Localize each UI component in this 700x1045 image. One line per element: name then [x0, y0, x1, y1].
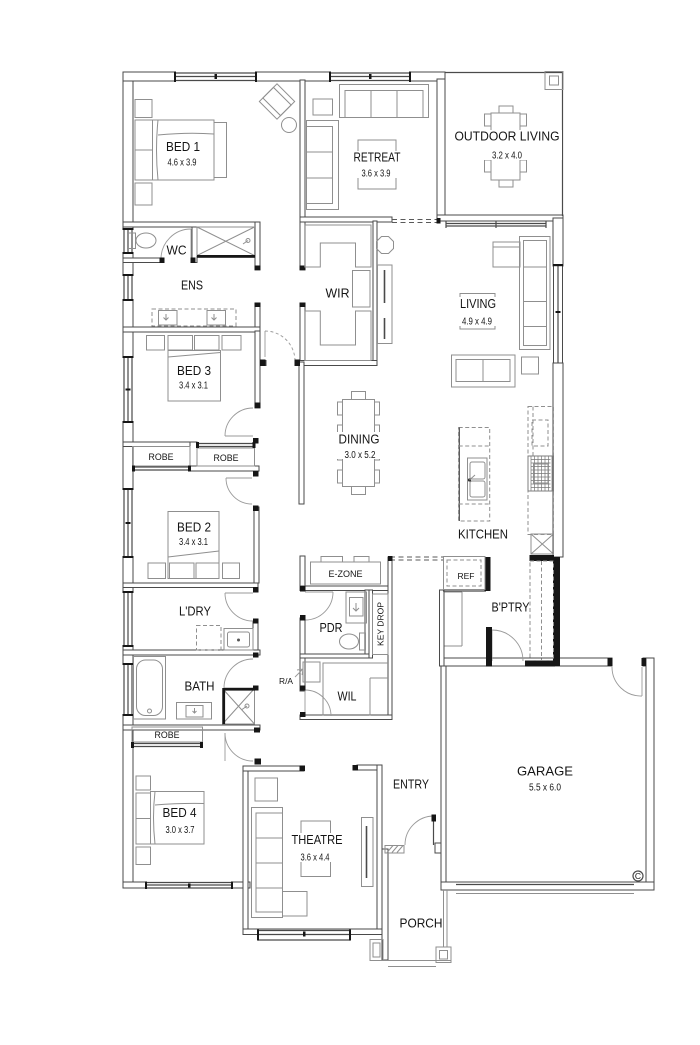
- svg-text:BATH: BATH: [185, 679, 215, 694]
- svg-text:3.2 x 4.0: 3.2 x 4.0: [492, 151, 522, 162]
- svg-text:DINING: DINING: [339, 432, 380, 447]
- svg-text:3.6 x 4.4: 3.6 x 4.4: [301, 853, 330, 864]
- svg-text:ENS: ENS: [181, 278, 203, 293]
- svg-text:LIVING: LIVING: [460, 296, 496, 311]
- svg-text:ROBE: ROBE: [155, 730, 180, 741]
- svg-text:L'DRY: L'DRY: [179, 604, 211, 619]
- svg-text:5.5 x 6.0: 5.5 x 6.0: [529, 783, 561, 794]
- svg-text:THEATRE: THEATRE: [292, 832, 343, 847]
- svg-text:RETREAT: RETREAT: [354, 150, 401, 165]
- svg-text:ENTRY: ENTRY: [393, 777, 429, 792]
- svg-text:3.4 x 3.1: 3.4 x 3.1: [179, 381, 208, 392]
- svg-text:3.0 x 5.2: 3.0 x 5.2: [345, 450, 376, 461]
- svg-text:PDR: PDR: [320, 620, 343, 635]
- svg-text:R/A: R/A: [279, 676, 293, 686]
- svg-text:BED 4: BED 4: [163, 805, 197, 820]
- svg-text:WC: WC: [167, 243, 187, 258]
- svg-text:KEY DROP: KEY DROP: [376, 602, 386, 646]
- svg-text:C: C: [635, 871, 641, 881]
- svg-text:BED 3: BED 3: [177, 363, 211, 378]
- svg-text:WIL: WIL: [338, 689, 357, 704]
- svg-text:BED 1: BED 1: [166, 139, 200, 154]
- svg-text:3.6 x 3.9: 3.6 x 3.9: [362, 169, 391, 180]
- svg-text:4.6 x 3.9: 4.6 x 3.9: [168, 158, 197, 169]
- svg-text:3.0 x 3.7: 3.0 x 3.7: [166, 825, 195, 836]
- svg-text:REF: REF: [458, 571, 475, 581]
- svg-text:B'PTRY: B'PTRY: [492, 600, 530, 615]
- svg-text:ROBE: ROBE: [214, 453, 239, 464]
- svg-text:3.4 x 3.1: 3.4 x 3.1: [179, 537, 208, 548]
- svg-text:OUTDOOR LIVING: OUTDOOR LIVING: [455, 129, 560, 144]
- svg-text:GARAGE: GARAGE: [517, 764, 573, 779]
- svg-text:KITCHEN: KITCHEN: [458, 527, 508, 542]
- svg-text:ROBE: ROBE: [149, 452, 174, 463]
- svg-text:E-ZONE: E-ZONE: [329, 569, 363, 580]
- svg-text:BED 2: BED 2: [177, 520, 211, 535]
- svg-text:WIR: WIR: [326, 286, 350, 301]
- svg-text:4.9 x 4.9: 4.9 x 4.9: [462, 317, 492, 328]
- svg-text:PORCH: PORCH: [400, 916, 443, 931]
